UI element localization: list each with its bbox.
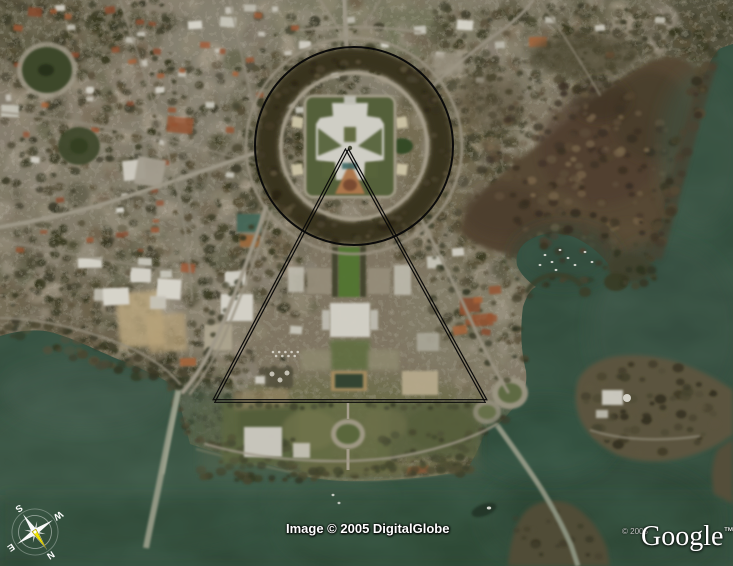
svg-text:S: S <box>13 502 24 515</box>
svg-text:W: W <box>51 508 65 522</box>
svg-text:N: N <box>44 548 56 561</box>
